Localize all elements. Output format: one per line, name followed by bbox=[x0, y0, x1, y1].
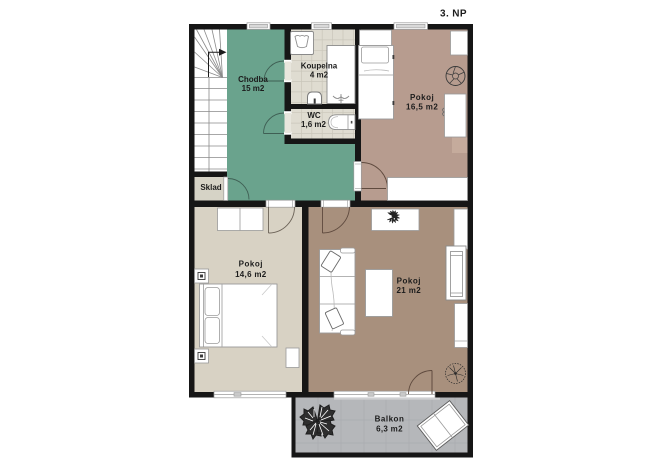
svg-text:WC: WC bbox=[307, 111, 321, 120]
svg-text:21 m2: 21 m2 bbox=[396, 286, 421, 295]
svg-text:Pokoj: Pokoj bbox=[239, 259, 263, 268]
svg-text:15 m2: 15 m2 bbox=[242, 84, 265, 93]
svg-text:16,5 m2: 16,5 m2 bbox=[406, 102, 438, 111]
svg-text:Pokoj: Pokoj bbox=[397, 276, 421, 285]
svg-text:Pokoj: Pokoj bbox=[410, 93, 434, 102]
svg-text:4 m2: 4 m2 bbox=[310, 70, 329, 79]
svg-text:14,6 m2: 14,6 m2 bbox=[235, 270, 267, 279]
svg-text:1,6 m2: 1,6 m2 bbox=[301, 120, 326, 129]
svg-text:Sklad: Sklad bbox=[200, 183, 221, 192]
svg-text:6,3 m2: 6,3 m2 bbox=[376, 424, 403, 433]
svg-text:3. NP: 3. NP bbox=[440, 8, 467, 19]
svg-text:Koupelna: Koupelna bbox=[301, 61, 338, 70]
svg-text:Balkon: Balkon bbox=[375, 415, 405, 424]
svg-text:Chodba: Chodba bbox=[238, 75, 268, 84]
